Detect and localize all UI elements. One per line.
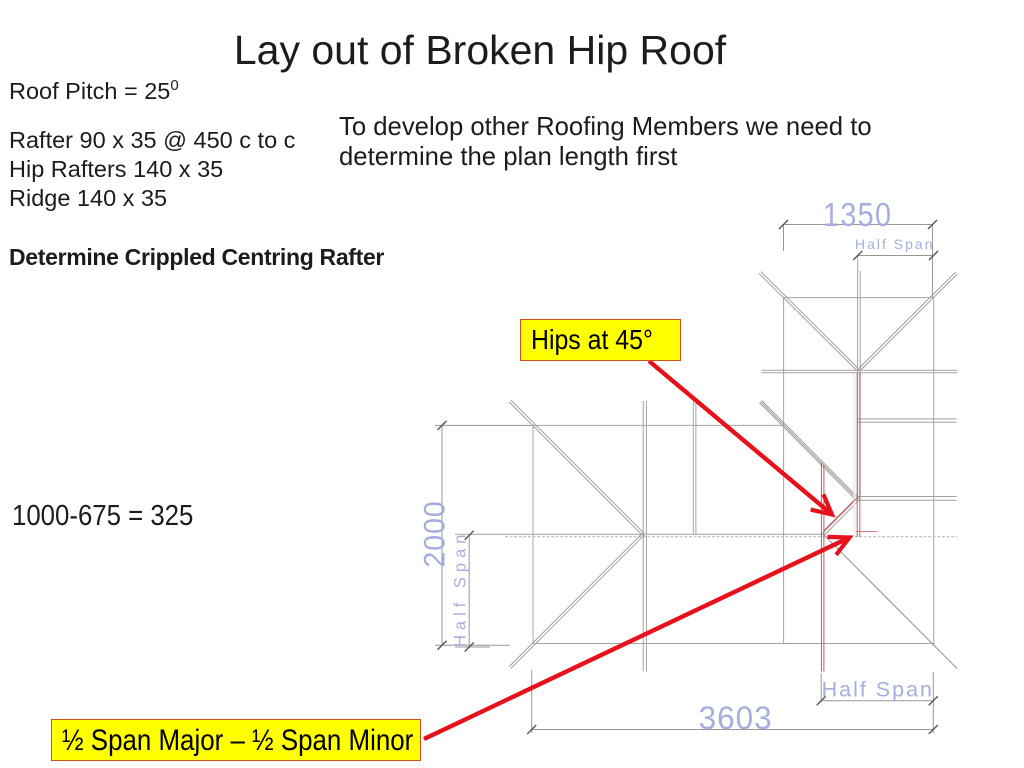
svg-text:3603: 3603 xyxy=(699,700,773,736)
svg-text:Half Span: Half Span xyxy=(452,530,470,647)
svg-text:Half Span: Half Span xyxy=(855,236,934,252)
svg-text:1350: 1350 xyxy=(823,196,892,233)
svg-text:Half Span: Half Span xyxy=(822,678,934,702)
svg-text:2000: 2000 xyxy=(419,500,452,567)
